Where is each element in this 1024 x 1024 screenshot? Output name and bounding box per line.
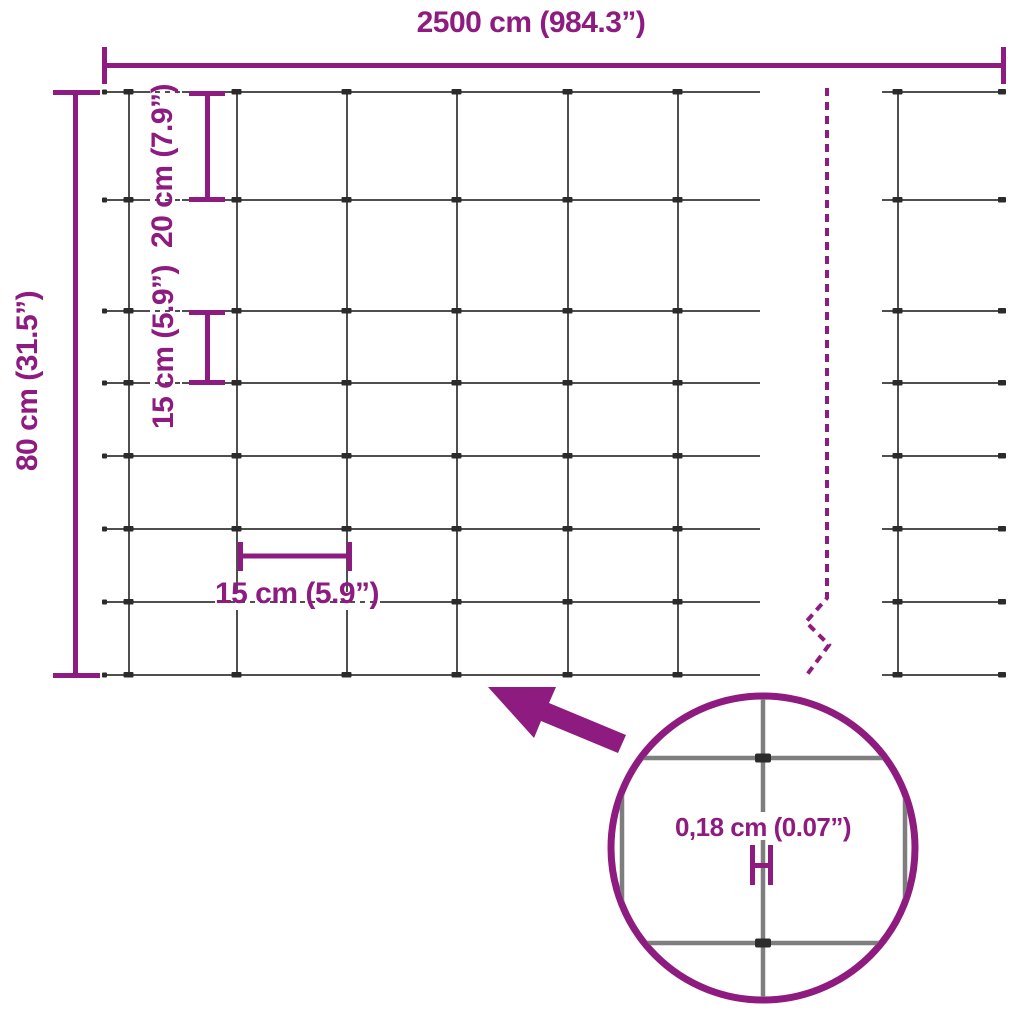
fence-dimension-diagram: 2500 cm (984.3”) 80 cm (31.5”) 20 cm (7.… bbox=[0, 0, 1024, 1024]
wire-thickness-detail-circle bbox=[605, 693, 921, 1003]
spacing-20cm-label: 20 cm (7.9”) bbox=[148, 84, 178, 248]
callout-arrow bbox=[488, 687, 626, 753]
total-height-label: 80 cm (31.5”) bbox=[13, 291, 43, 471]
label-backgrounds bbox=[145, 84, 396, 610]
spacing-20cm-bracket bbox=[189, 93, 225, 200]
spacing-15cm-vertical-label: 15 cm (5.9”) bbox=[149, 265, 179, 429]
wire-mesh-right-section bbox=[882, 89, 1006, 678]
break-continuation-line bbox=[806, 88, 829, 676]
spacing-15cm-horizontal-label: 15 cm (5.9”) bbox=[215, 579, 379, 609]
spacing-15cm-horizontal-bracket bbox=[240, 542, 350, 571]
width-dimension bbox=[104, 47, 1004, 84]
total-width-label: 2500 cm (984.3”) bbox=[417, 8, 646, 38]
height-dimension bbox=[53, 90, 100, 677]
wire-thickness-label: 0,18 cm (0.07”) bbox=[675, 814, 851, 840]
spacing-15cm-vertical-bracket bbox=[189, 313, 225, 383]
